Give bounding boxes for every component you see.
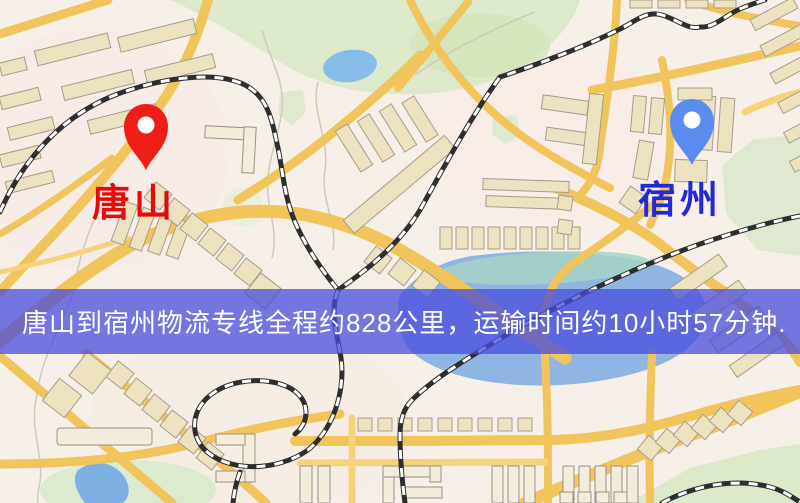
route-info-banner: 唐山到宿州物流专线全程约828公里，运输时间约10小时57分钟. bbox=[0, 289, 800, 354]
location-pin-icon bbox=[668, 95, 716, 167]
route-info-text: 唐山到宿州物流专线全程约828公里，运输时间约10小时57分钟. bbox=[22, 303, 786, 340]
map-screenshot: 唐山 宿州 唐山到宿州物流专线全程约828公里，运输时间约10小时57分钟. bbox=[0, 0, 800, 503]
pin-hole bbox=[138, 117, 155, 134]
location-pin-icon bbox=[122, 100, 170, 172]
destination-pin[interactable] bbox=[668, 95, 716, 167]
pin-body bbox=[670, 99, 714, 165]
pin-hole bbox=[684, 112, 701, 129]
pin-body bbox=[124, 104, 168, 170]
origin-city-label: 唐山 bbox=[92, 185, 176, 223]
destination-city-label: 宿州 bbox=[638, 182, 722, 220]
map-background bbox=[0, 0, 800, 503]
origin-pin[interactable] bbox=[122, 100, 170, 172]
